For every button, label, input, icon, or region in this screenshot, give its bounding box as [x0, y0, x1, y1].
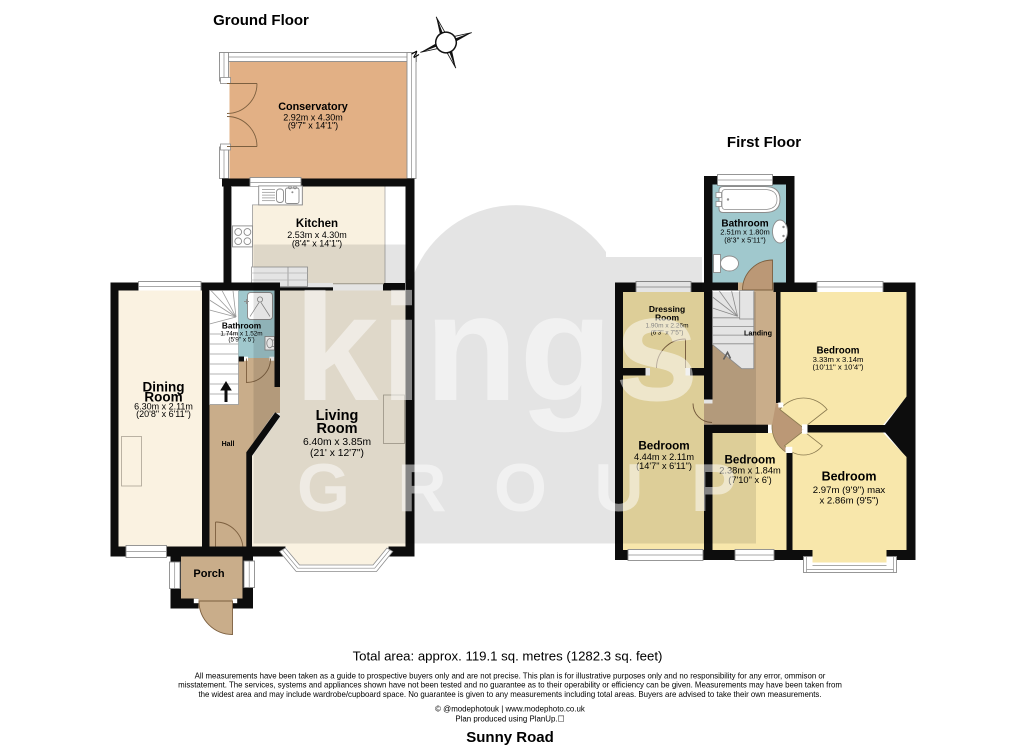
svg-text:Sunny Road: Sunny Road [466, 729, 554, 745]
svg-text:© @modephotouk | www.modephoto: © @modephotouk | www.modephoto.co.uk [435, 705, 585, 714]
svg-text:(8'3" x 5'11"): (8'3" x 5'11") [724, 236, 766, 245]
svg-text:(10'11" x 10'4"): (10'11" x 10'4") [813, 363, 864, 372]
svg-text:Kitchen: Kitchen [296, 218, 338, 230]
svg-text:(5'9" x 5'): (5'9" x 5') [228, 337, 254, 344]
svg-text:(9'7" x 14'1"): (9'7" x 14'1") [288, 121, 338, 131]
svg-text:kings: kings [294, 263, 701, 433]
svg-text:Conservatory: Conservatory [278, 101, 348, 113]
svg-text:x 2.86m (9'5"): x 2.86m (9'5") [819, 495, 878, 506]
svg-text:Porch: Porch [193, 568, 224, 580]
svg-text:Bedroom: Bedroom [822, 470, 877, 484]
svg-text:Total area: approx. 119.1 sq.: Total area: approx. 119.1 sq. metres (12… [353, 649, 663, 664]
svg-text:the widest area and may includ: the widest area and may include wardrobe… [198, 690, 821, 699]
svg-text:(20'8" x 6'11"): (20'8" x 6'11") [136, 409, 191, 419]
svg-text:misstatement. The services, sy: misstatement. The services, systems and … [178, 681, 842, 690]
svg-text:GROUP: GROUP [297, 450, 784, 526]
svg-text:First Floor: First Floor [727, 134, 801, 151]
svg-text:Hall: Hall [222, 441, 235, 448]
svg-text:All measurements have been tak: All measurements have been taken as a gu… [195, 672, 826, 681]
svg-text:Plan produced using PlanUp.☐: Plan produced using PlanUp.☐ [455, 715, 564, 724]
svg-text:Ground Floor: Ground Floor [213, 12, 309, 29]
